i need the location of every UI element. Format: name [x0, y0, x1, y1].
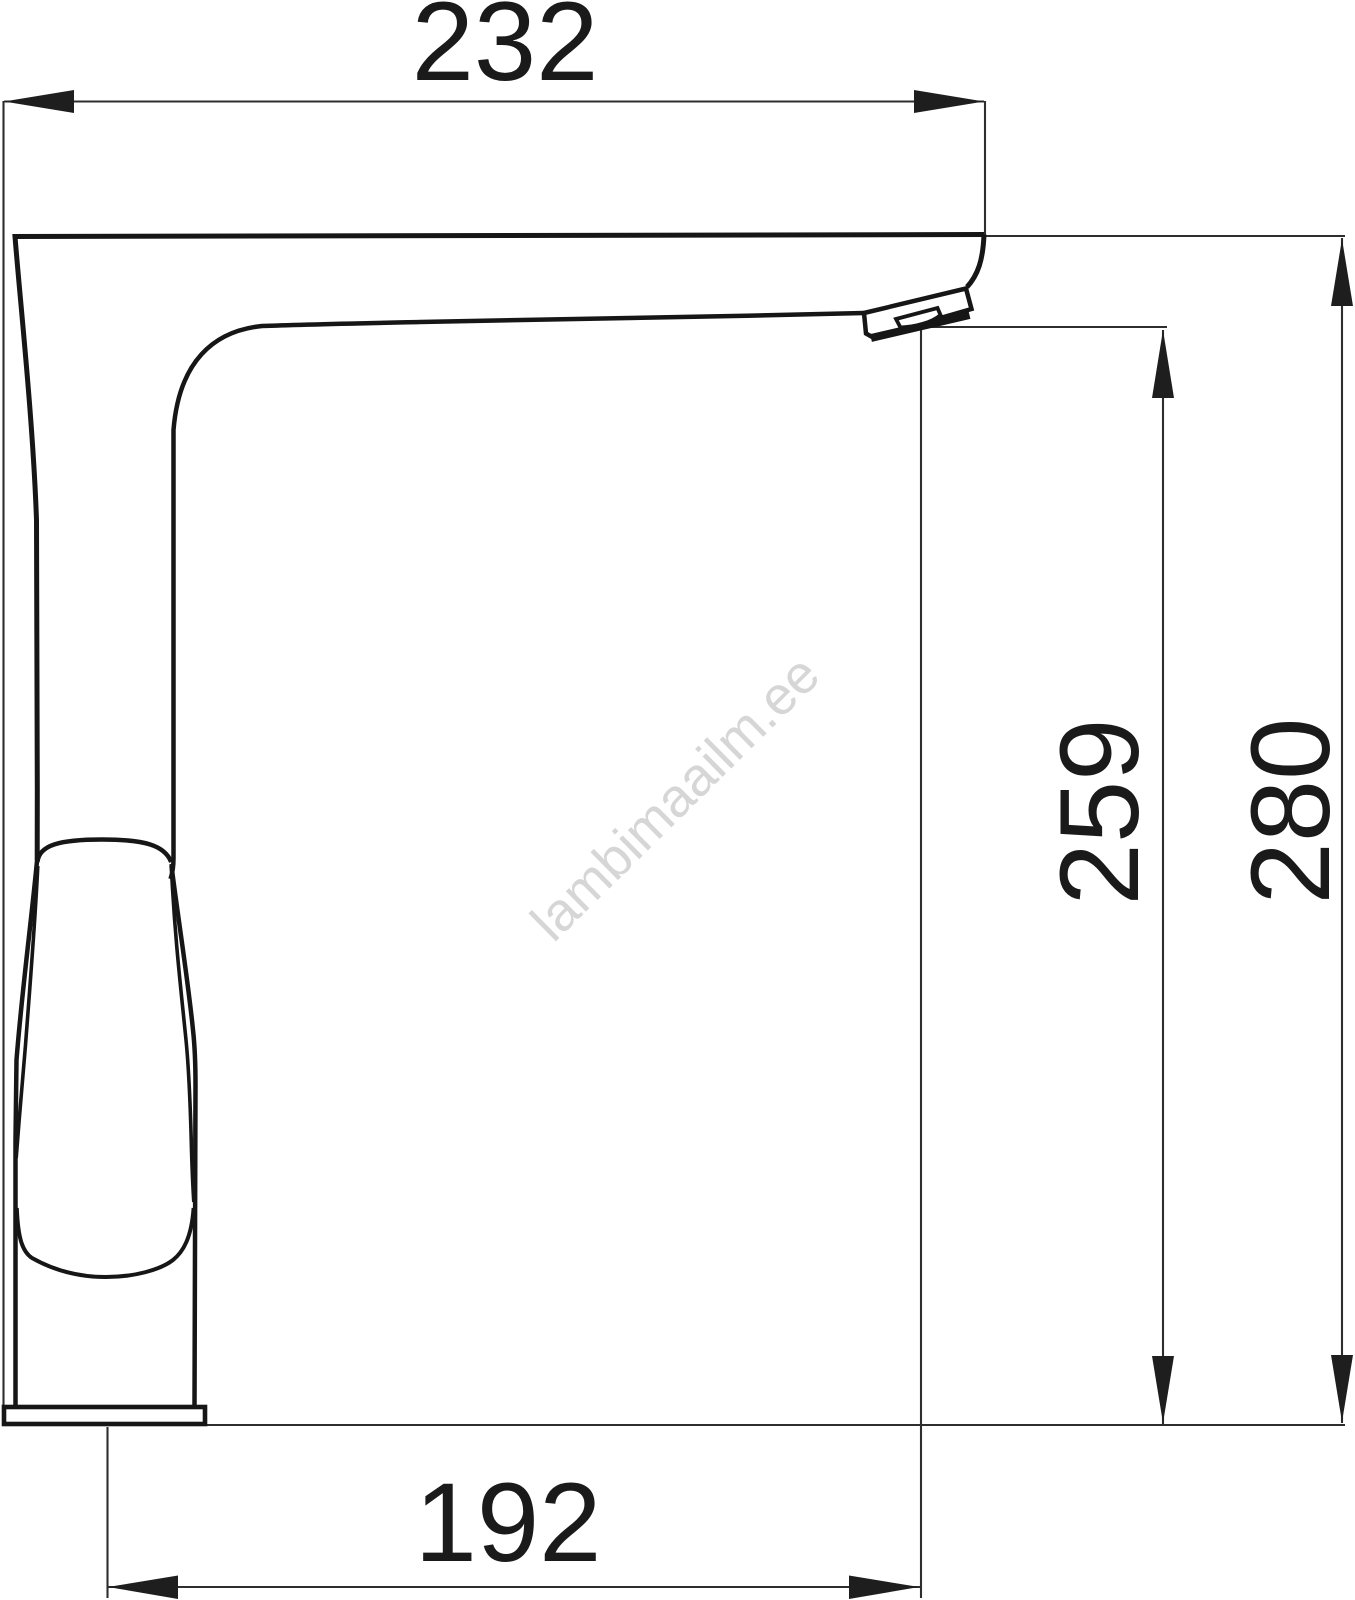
- svg-text:192: 192: [415, 1460, 602, 1585]
- svg-text:232: 232: [412, 0, 599, 104]
- svg-text:259: 259: [1037, 719, 1162, 906]
- svg-text:280: 280: [1228, 718, 1353, 905]
